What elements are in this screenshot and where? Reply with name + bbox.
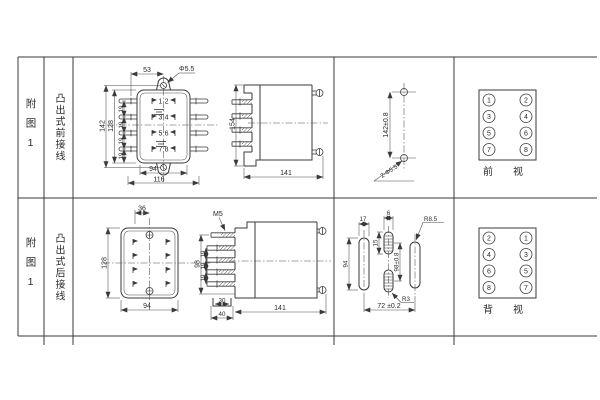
pin-number: 3 (159, 115, 163, 122)
dim-label: 141 (274, 305, 286, 312)
dim-label: 2-Φ5.5 (379, 163, 399, 180)
terminal-number: 7 (524, 285, 528, 292)
mounting-screws (312, 90, 323, 156)
drawing-sheet: 附图1 凸出式前接线 附图1 凸出式后接线 (0, 0, 600, 400)
dim-label: 116 (153, 177, 164, 184)
dim-label: 19 (200, 250, 207, 257)
relay-rear-side-view-drawing: M5 98 19 19 19 30 40 141 (195, 198, 333, 336)
dim-label: 142±0.8 (383, 112, 390, 137)
wiring-label-row1: 凸出式前接线 (44, 57, 73, 198)
dim-label: 128 (102, 257, 109, 269)
fig-label-text: 附图1 (24, 98, 39, 158)
mounting-holes (392, 83, 416, 169)
terminal-number: 6 (487, 269, 491, 276)
dimensions: 53 Φ5.5 142 128 19 19 19 19 94 (100, 66, 200, 185)
dimensions: 142±0.8 2-Φ5.5 (374, 92, 414, 181)
dim-label: R3 (402, 296, 410, 303)
dim-label: 154 (230, 118, 237, 130)
dim-label: M5 (213, 211, 223, 218)
relay-side-view-drawing: 154 141 (228, 60, 330, 192)
terminal-number: 8 (487, 285, 491, 292)
dim-label: 40 (219, 311, 226, 318)
fig-label-row2: 附图1 (18, 198, 44, 336)
view-caption: 背视 (483, 303, 543, 316)
fig-label-text: 附图1 (24, 237, 39, 297)
dim-label: 19 (118, 152, 125, 159)
dim-label: 141 (280, 170, 292, 177)
terminal-number: 2 (524, 98, 528, 105)
terminal-number: 8 (524, 147, 528, 154)
terminal-number: 3 (487, 114, 491, 121)
terminal-number: 1 (524, 236, 528, 243)
dim-label: 19 (118, 121, 125, 128)
pin-number: 4 (165, 115, 169, 122)
dimensions: 36 128 94 (102, 206, 179, 313)
dim-label: 36 (138, 206, 146, 213)
dim-label: 94 (149, 166, 157, 173)
wiring-label-row2: 凸出式后接线 (44, 198, 73, 336)
terminal-back-view-drawing: 2 4 6 8 1 3 5 7 背视 (456, 198, 598, 336)
dim-label: 98±0.8 (394, 252, 401, 271)
pin-number: 1 (159, 99, 163, 106)
terminal-number: 7 (487, 147, 491, 154)
terminal-number: 3 (524, 252, 528, 259)
dim-label: 6 (387, 210, 391, 217)
cutout-slots (359, 226, 420, 298)
terminal-studs (207, 233, 235, 288)
pin-number: 8 (165, 147, 169, 154)
dim-label: 15 (373, 239, 380, 246)
terminal-circles: 1 3 5 7 2 4 6 8 (483, 94, 532, 156)
dim-label: 19 (118, 137, 125, 144)
terminal-front-view-drawing: 1 3 5 7 2 4 6 8 前视 (456, 57, 598, 196)
dim-label: 17 (360, 216, 367, 223)
dim-label: 72 ±0.2 (377, 303, 400, 310)
dim-label: 128 (108, 120, 115, 132)
terminal-number: 1 (487, 98, 491, 105)
drilling-plan-drawing: 142±0.8 2-Φ5.5 (336, 57, 452, 196)
pin-number: 6 (165, 131, 169, 138)
dimensions: 17 6 15 94 98±0.8 R8.5 R3 72 ±0.2 (343, 210, 445, 312)
dimensions: M5 98 19 19 19 30 40 141 (195, 211, 327, 320)
dim-label: 53 (143, 67, 151, 74)
terminal-number: 4 (487, 252, 491, 259)
view-caption: 前视 (483, 165, 543, 178)
dim-label: 94 (143, 303, 151, 310)
pin-number: 7 (159, 147, 163, 154)
dim-label: 94 (343, 260, 350, 267)
wiring-label-text: 凸出式后接线 (51, 233, 66, 302)
dim-label: 19 (200, 262, 207, 269)
mounting-screws (317, 228, 326, 294)
pin-number: 5 (159, 131, 163, 138)
relay-front-view-drawing: 1 2 3 4 5 6 7 8 53 Φ5.5 142 (95, 60, 225, 192)
wiring-label-text: 凸出式前接线 (51, 93, 66, 162)
pin-number: 2 (165, 99, 169, 106)
contact-pins (133, 239, 171, 287)
dim-label: R8.5 (424, 216, 438, 223)
terminal-number: 6 (524, 131, 528, 138)
dim-label: 19 (200, 274, 207, 281)
terminal-number: 4 (524, 114, 528, 121)
dim-label: 142 (100, 120, 107, 132)
terminal-circles: 2 4 6 8 1 3 5 7 (483, 232, 532, 294)
fig-label-row1: 附图1 (18, 57, 44, 198)
terminal-number: 5 (487, 131, 491, 138)
terminal-number: 5 (524, 269, 528, 276)
dim-label: Φ5.5 (179, 66, 194, 73)
terminal-number: 2 (487, 236, 491, 243)
panel-cutout-drawing: 17 6 15 94 98±0.8 R8.5 R3 72 ±0.2 (336, 198, 452, 336)
dim-label: 30 (219, 298, 226, 305)
dim-label: 19 (118, 105, 125, 112)
